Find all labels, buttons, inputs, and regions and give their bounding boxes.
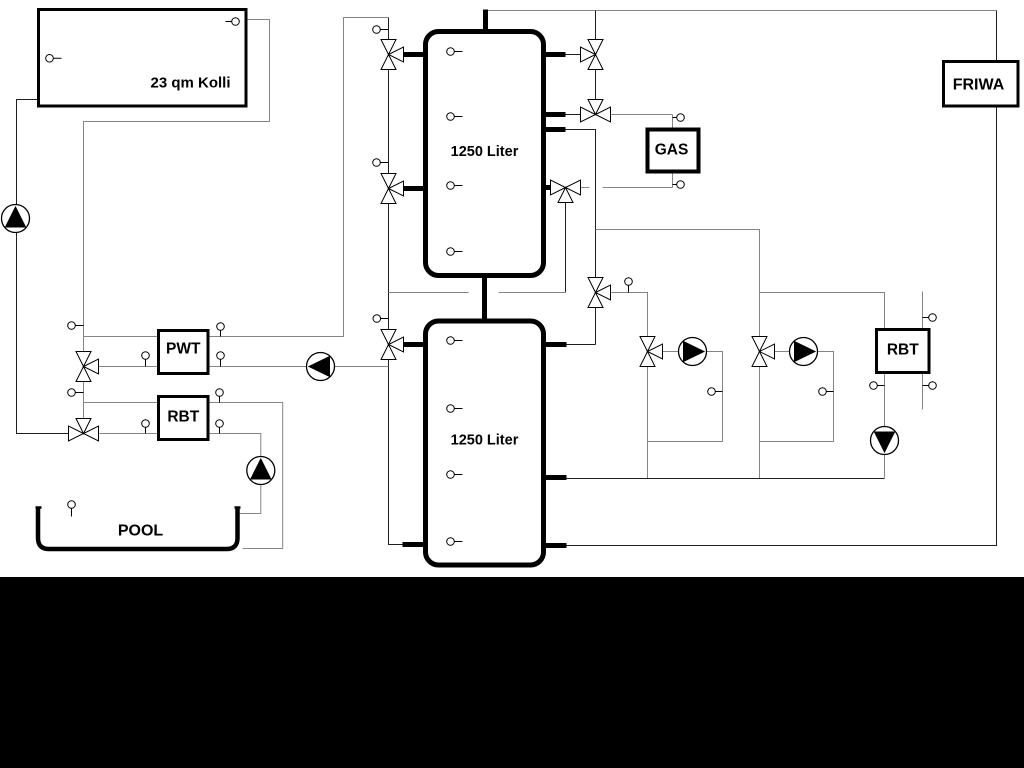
svg-text:RBT: RBT <box>167 409 199 426</box>
svg-text:FRIWA: FRIWA <box>953 77 1005 94</box>
svg-text:GAS: GAS <box>655 142 689 159</box>
svg-text:1250 Liter: 1250 Liter <box>451 433 519 449</box>
svg-text:23 qm Kolli: 23 qm Kolli <box>150 75 230 92</box>
svg-text:POOL: POOL <box>118 523 164 540</box>
svg-text:RBT: RBT <box>887 342 919 359</box>
svg-text:PWT: PWT <box>166 341 201 358</box>
svg-text:1250 Liter: 1250 Liter <box>451 144 519 160</box>
